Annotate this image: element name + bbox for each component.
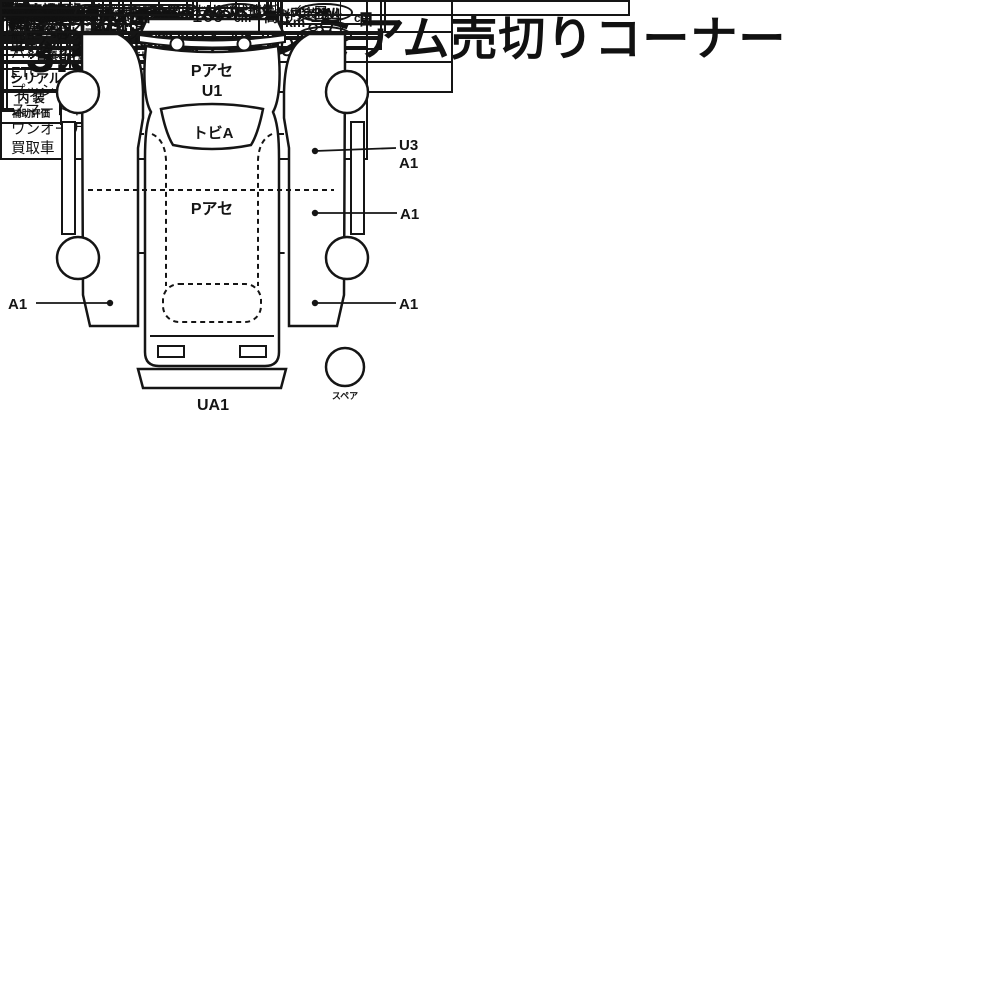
diagram-right-mid-code: A1 xyxy=(400,206,419,223)
diagram-right-upper-code1: U3 xyxy=(399,137,418,154)
spare-tire-circle xyxy=(326,348,364,386)
diagram-rear-code: UA1 xyxy=(197,397,229,414)
damage-diagram: A1 Pアセ U1 トビA Pアセ U3 A1 A1 A1 A1 UA1 スペア xyxy=(0,0,465,424)
diagram-right-lower-code: A1 xyxy=(399,296,418,313)
diagram-windshield-code: トビA xyxy=(193,125,234,142)
diagram-hood-code2: U1 xyxy=(202,83,223,100)
diagram-hood-code: Pアセ xyxy=(191,63,233,80)
diagram-spare-label: スペア xyxy=(332,391,358,401)
diagram-right-upper-code2: A1 xyxy=(399,155,418,172)
diagram-roof-code: Pアセ xyxy=(191,201,233,218)
bottom-right-box xyxy=(0,0,272,9)
diagram-left-lower-code: A1 xyxy=(8,296,27,313)
auction-sheet: プレミアム売切りコーナー No. 10314 車歴 （自家用以外は記入） 排気量… xyxy=(0,0,1000,1000)
